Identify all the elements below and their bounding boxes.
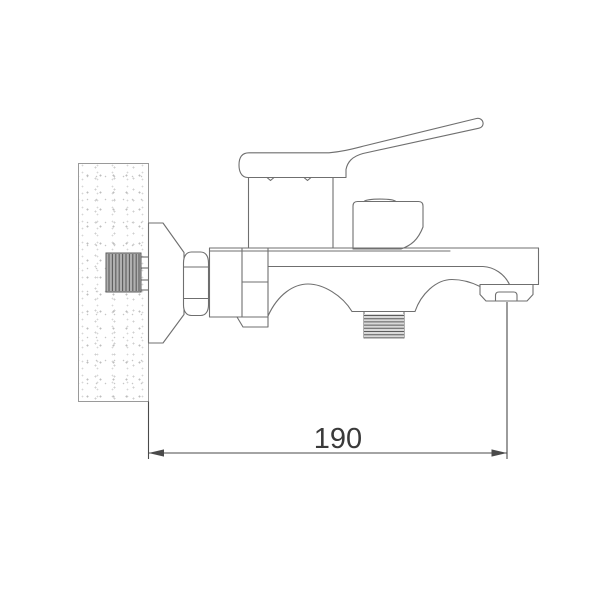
flange-foot bbox=[237, 317, 268, 327]
arrow-right bbox=[492, 449, 508, 456]
underbody-arch-right bbox=[415, 280, 480, 312]
valve-body bbox=[249, 178, 334, 249]
arrow-left bbox=[149, 449, 165, 456]
wall-anchor-thread bbox=[106, 253, 148, 292]
faucet-linework bbox=[149, 118, 539, 343]
underbody-arch-left bbox=[268, 284, 352, 316]
faucet-drawing: 190 bbox=[0, 0, 600, 600]
shower-hose-thread bbox=[364, 314, 404, 338]
handle-lever bbox=[239, 118, 483, 177]
technical-drawing-canvas: 190 bbox=[0, 0, 600, 600]
dimension-label: 190 bbox=[314, 423, 362, 455]
spout-tip-block bbox=[480, 285, 533, 302]
hex-nut bbox=[184, 252, 209, 316]
escutcheon-cone bbox=[149, 223, 185, 343]
spout-inner-line bbox=[268, 267, 510, 285]
aerator bbox=[496, 292, 518, 301]
anchor-pipe-ticks bbox=[141, 257, 148, 290]
diverter-knob bbox=[353, 202, 423, 250]
mounting-flange bbox=[210, 248, 269, 317]
